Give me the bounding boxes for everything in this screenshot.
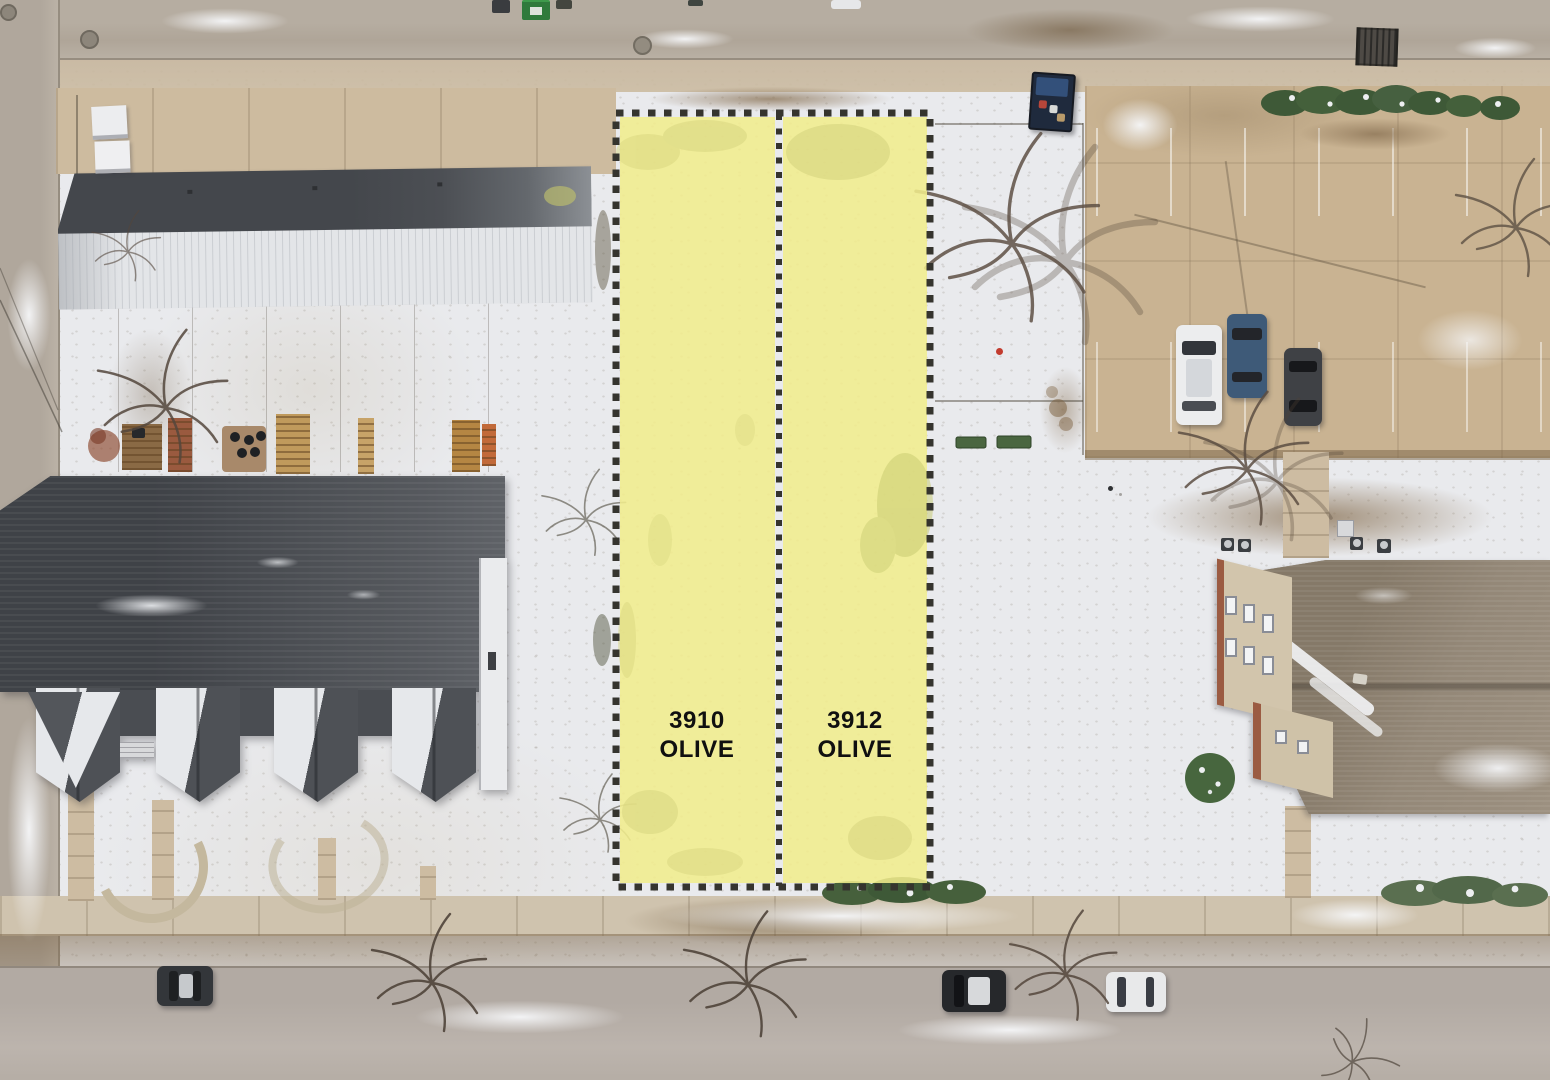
backyard-grill xyxy=(132,428,145,438)
fence-line xyxy=(192,302,193,472)
snow-patch xyxy=(0,240,58,390)
fence-line xyxy=(1082,123,1084,455)
front-steps xyxy=(120,742,154,758)
house-window xyxy=(1262,656,1274,675)
snow-patch xyxy=(380,995,660,1039)
backyard-walk xyxy=(358,418,374,474)
dumpster-contents xyxy=(1039,100,1048,109)
rowhouse-large xyxy=(0,470,512,804)
roof-valley xyxy=(356,690,394,736)
snow-patch xyxy=(140,4,310,38)
rowhouse-long-roof-snow xyxy=(58,226,593,309)
lot-address-street: OLIVE xyxy=(781,735,929,764)
lot-label-3912: 3912 OLIVE xyxy=(781,706,929,765)
snow-patch xyxy=(1090,90,1190,160)
rowhouse-long-roof-dark xyxy=(57,166,592,233)
roof-valley xyxy=(238,690,276,736)
snow-patch xyxy=(1400,300,1540,380)
manhole xyxy=(0,4,17,21)
car-dark-sedan xyxy=(157,966,213,1006)
bare-tree xyxy=(542,469,626,555)
lot-3912-fill xyxy=(783,117,927,883)
dirt-patch xyxy=(1270,112,1480,156)
ac-unit xyxy=(1238,539,1251,552)
dirt-patch xyxy=(1030,350,1100,470)
roof-vent xyxy=(187,190,192,194)
storm-drain-grate xyxy=(1355,27,1398,66)
rowhouse-end-wall xyxy=(479,558,507,790)
lot-boundary xyxy=(616,113,930,887)
blue-dumpster xyxy=(1028,72,1076,133)
walkway xyxy=(1285,806,1311,898)
car-blue-sedan xyxy=(1227,314,1267,398)
roof-gable-wing xyxy=(392,688,476,802)
aerial-photo: 3910 OLIVE 3912 OLIVE xyxy=(0,0,1550,1080)
car-white-sedan xyxy=(1106,972,1166,1012)
roof-vent xyxy=(437,182,442,186)
fence-line xyxy=(118,302,119,472)
garden-beds xyxy=(956,436,1031,448)
rowhouse-large-main-roof xyxy=(0,476,505,692)
roof-gable-wing xyxy=(274,688,358,802)
walkway xyxy=(420,866,436,900)
manhole xyxy=(633,36,652,55)
trash-bin xyxy=(492,0,510,13)
backyard-patio xyxy=(222,426,266,472)
walkway xyxy=(1283,452,1329,558)
car-black-suv xyxy=(942,970,1006,1012)
ac-unit xyxy=(1221,538,1234,551)
car-distant xyxy=(831,0,861,9)
fence-line xyxy=(414,302,415,472)
house-right xyxy=(1205,552,1550,814)
backyard-stairs xyxy=(168,418,192,472)
trash-bin xyxy=(556,0,572,9)
snow-patch xyxy=(1440,34,1550,62)
house-window xyxy=(1275,730,1287,744)
rowhouse-long xyxy=(57,164,593,309)
concrete-pad xyxy=(56,88,616,174)
lot-address-number: 3912 xyxy=(781,706,929,735)
backyard-deck xyxy=(452,420,480,472)
end-wall-window xyxy=(488,652,496,670)
house-window xyxy=(1243,604,1255,623)
backyard-stairs xyxy=(276,414,310,474)
dirt-patch xyxy=(600,82,940,116)
dumpster-lid xyxy=(1035,77,1068,97)
snow-patch xyxy=(1160,2,1360,36)
fence-line xyxy=(76,95,78,180)
snow-patch xyxy=(600,894,1080,938)
lot-address-street: OLIVE xyxy=(618,735,776,764)
house-window xyxy=(1225,638,1237,657)
house-window xyxy=(1262,614,1274,633)
car-dark-hatchback xyxy=(1284,348,1322,426)
roof-gable-wing xyxy=(156,688,240,802)
fence-line xyxy=(340,302,341,472)
ac-unit xyxy=(1350,537,1363,550)
roof-valley xyxy=(118,690,158,736)
patio-furniture xyxy=(230,432,240,442)
house-window xyxy=(1225,596,1237,615)
bare-tree xyxy=(560,774,636,852)
ac-unit xyxy=(1377,539,1391,553)
house-window xyxy=(1297,740,1309,754)
manhole xyxy=(80,30,99,49)
roof-vent xyxy=(1352,673,1367,685)
lot-address-number: 3910 xyxy=(618,706,776,735)
snow-patch xyxy=(1270,894,1440,936)
utility-box xyxy=(91,105,128,140)
lot-label-3910: 3910 OLIVE xyxy=(618,706,776,765)
house-window xyxy=(1243,646,1255,665)
fence-line xyxy=(935,400,1083,402)
bottom-street xyxy=(0,966,1550,1080)
dumpster-label xyxy=(530,7,542,15)
lamp-post xyxy=(1108,486,1113,491)
utility-box xyxy=(1337,520,1354,537)
bare-tree xyxy=(916,134,1098,321)
green-dumpster xyxy=(522,0,550,20)
car-white-van xyxy=(1176,325,1222,425)
snow-patch xyxy=(860,1010,1160,1050)
red-marker xyxy=(996,348,1003,355)
lot-3910-fill xyxy=(620,117,775,883)
trash-bin xyxy=(688,0,703,6)
fence-line xyxy=(266,302,267,472)
roof-vent xyxy=(312,186,317,190)
backyard-stairs xyxy=(482,424,496,466)
utility-box xyxy=(94,140,130,173)
